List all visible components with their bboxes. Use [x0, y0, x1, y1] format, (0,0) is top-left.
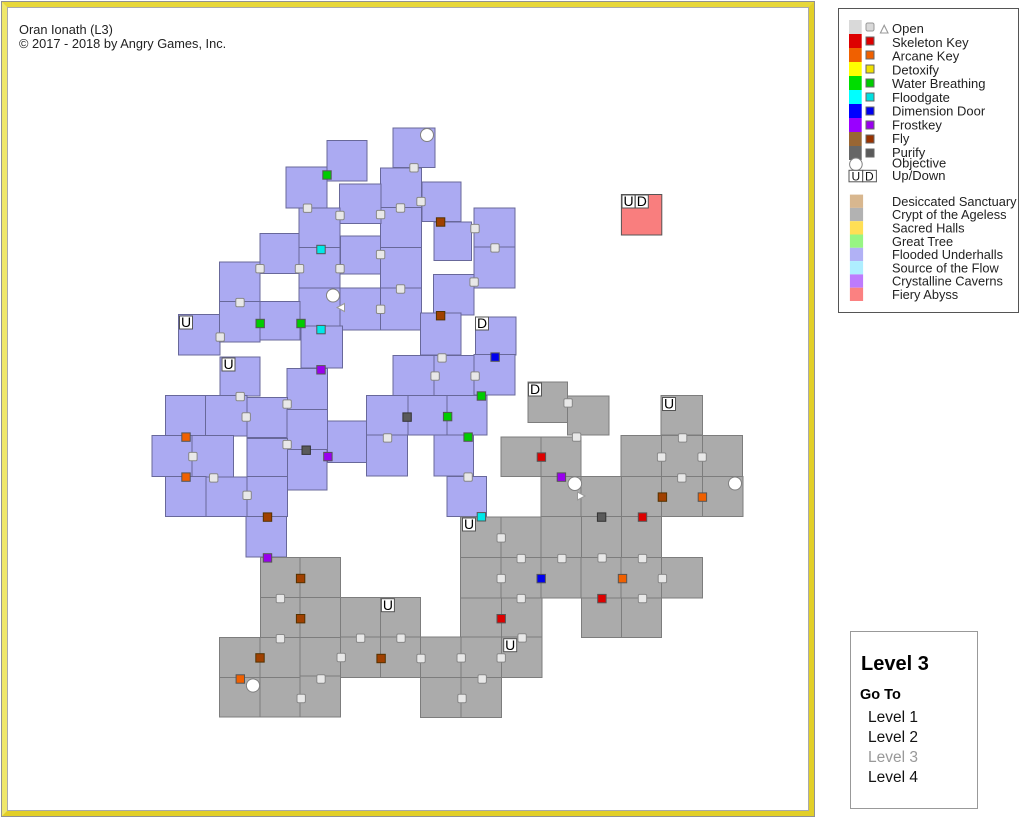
svg-text:Water Breathing: Water Breathing [892, 76, 985, 91]
svg-text:D: D [865, 169, 874, 183]
svg-text:Arcane Key: Arcane Key [892, 49, 960, 64]
svg-text:Up/Down: Up/Down [892, 168, 945, 183]
svg-text:U: U [852, 169, 861, 183]
svg-text:Frostkey: Frostkey [892, 117, 942, 132]
svg-text:Open: Open [892, 21, 924, 36]
svg-text:Fiery Abyss: Fiery Abyss [892, 287, 958, 302]
